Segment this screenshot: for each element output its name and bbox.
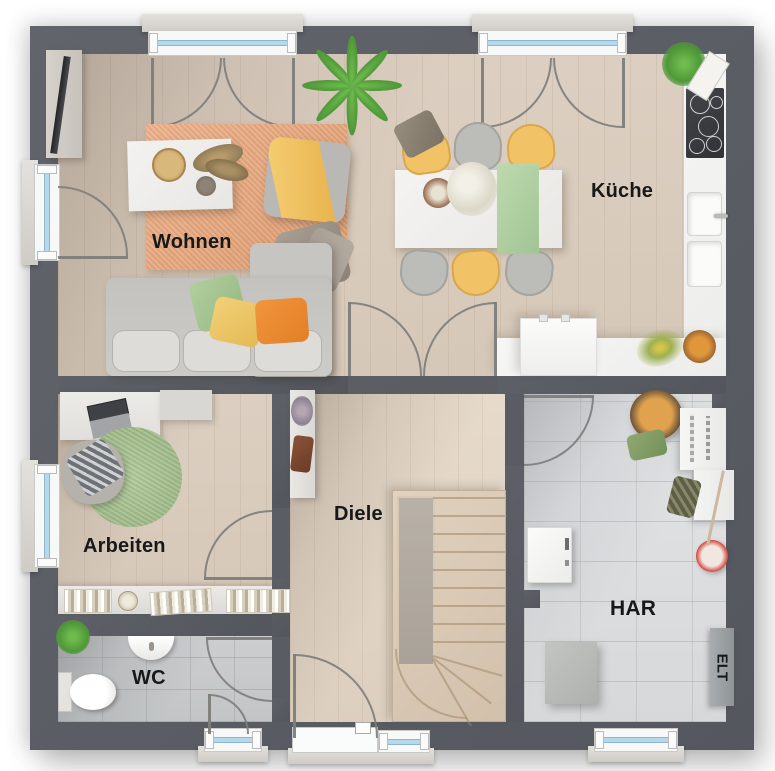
desk-side-panel bbox=[160, 390, 212, 420]
window-arbeiten-cap-bottom bbox=[37, 558, 57, 567]
vase bbox=[196, 176, 216, 196]
window-har-cap-left bbox=[595, 731, 604, 749]
room-label-elt: ELT bbox=[714, 653, 731, 681]
sink-basin-2 bbox=[687, 241, 722, 287]
freezer-box bbox=[545, 642, 597, 704]
kitchen-appliance bbox=[520, 318, 597, 376]
room-label-wc: WC bbox=[132, 667, 166, 690]
wall-arbeiten-diele-upper bbox=[272, 394, 290, 508]
toilet-bowl bbox=[70, 674, 116, 710]
books-mid bbox=[149, 588, 213, 616]
burner-4 bbox=[689, 138, 705, 154]
entrance-sidelight-cap-right bbox=[420, 733, 429, 750]
window-wc-glass bbox=[212, 737, 254, 743]
decor-jar bbox=[118, 591, 138, 611]
wall-kitchen-har bbox=[497, 376, 726, 394]
french-door-living-cap-bottom bbox=[37, 251, 57, 260]
floor-plan: ELT Wohnen Küche Arbeiten Diele WC HAR bbox=[0, 0, 775, 771]
french-door-living bbox=[34, 164, 60, 261]
wc-sink-drain bbox=[149, 642, 154, 651]
office-sideboard bbox=[58, 586, 272, 614]
armchair-blanket bbox=[264, 136, 336, 224]
table-runner-top bbox=[498, 166, 538, 252]
red-bucket bbox=[696, 540, 728, 572]
window-kitchen-cap-left bbox=[479, 33, 488, 53]
wall-diele-har bbox=[505, 466, 524, 722]
window-kitchen-cap-right bbox=[617, 33, 626, 53]
wall-stub-har-left bbox=[524, 590, 540, 608]
window-arbeiten bbox=[34, 464, 60, 568]
burner-3 bbox=[698, 116, 719, 137]
room-label-arbeiten: Arbeiten bbox=[83, 535, 166, 558]
hanging-tools-1 bbox=[690, 414, 694, 462]
appliance-hinge-1 bbox=[539, 314, 548, 322]
chair-cloth-yellow bbox=[508, 258, 546, 300]
wall-wc-diele-lower bbox=[272, 698, 290, 722]
armchair bbox=[262, 136, 352, 224]
washing-machine-knob bbox=[565, 560, 569, 566]
books-left bbox=[64, 589, 112, 613]
terrace-door-living bbox=[148, 30, 297, 56]
terrace-door-living-cap-right bbox=[287, 33, 296, 53]
window-wc-cap-right bbox=[252, 731, 261, 749]
entrance-sidelight-glass bbox=[386, 739, 422, 745]
french-living-leaf bbox=[58, 256, 128, 259]
decor-plate bbox=[152, 148, 186, 182]
washing-machine-panel bbox=[565, 538, 569, 550]
french-door-living-cap-top bbox=[37, 165, 57, 174]
fruit-bowl-counter bbox=[683, 330, 716, 363]
window-har-glass bbox=[602, 737, 670, 743]
room-label-diele: Diele bbox=[334, 503, 383, 526]
wall-arbeiten-wc bbox=[58, 614, 272, 636]
room-label-kueche: Küche bbox=[591, 180, 653, 203]
diele-shelf bbox=[290, 390, 315, 498]
flower-bouquet bbox=[447, 162, 497, 216]
window-arbeiten-glass bbox=[44, 472, 50, 560]
appliance-hinge-2 bbox=[561, 314, 570, 322]
window-har bbox=[594, 728, 678, 752]
window-har-cap-right bbox=[668, 731, 677, 749]
wc-plant bbox=[56, 620, 90, 654]
window-arbeiten-cap-top bbox=[37, 465, 57, 474]
sofa-seat-1 bbox=[112, 330, 180, 372]
hanging-tools-2 bbox=[706, 416, 710, 460]
winder-curve bbox=[395, 649, 467, 719]
books-right bbox=[226, 589, 290, 613]
elt-panel: ELT bbox=[710, 628, 734, 706]
window-kitchen-glass bbox=[486, 40, 619, 46]
stair-runner bbox=[397, 496, 435, 666]
window-kitchen bbox=[478, 30, 627, 56]
entrance-sidelight bbox=[378, 730, 430, 753]
pillow-orange bbox=[255, 297, 310, 345]
entrance-sidelight-cap-left bbox=[379, 733, 388, 750]
diele-decor-flowers bbox=[291, 396, 313, 426]
french-door-living-glass bbox=[44, 172, 50, 253]
palm-plant bbox=[300, 44, 404, 126]
sink-faucet bbox=[714, 214, 728, 218]
har-shelf-top bbox=[680, 408, 726, 470]
burner-5 bbox=[706, 136, 722, 152]
room-label-wohnen: Wohnen bbox=[152, 231, 232, 254]
room-label-har: HAR bbox=[610, 597, 656, 621]
terrace-door-living-cap-left bbox=[149, 33, 158, 53]
terrace-door-living-glass bbox=[156, 40, 289, 46]
washing-machine bbox=[527, 527, 572, 583]
staircase bbox=[392, 490, 506, 722]
burner-2 bbox=[710, 96, 723, 109]
diele-decor-bag bbox=[290, 435, 314, 473]
